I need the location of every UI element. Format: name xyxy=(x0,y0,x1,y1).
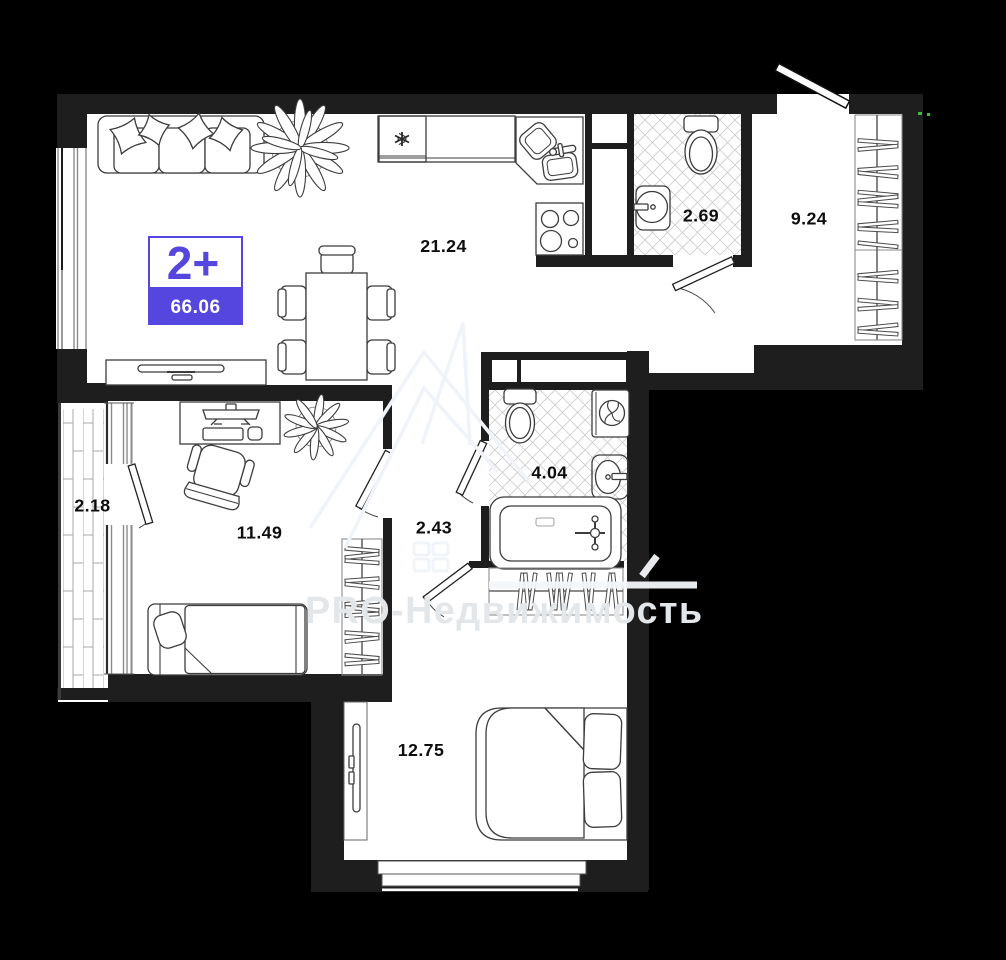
svg-text:21.24: 21.24 xyxy=(420,236,467,256)
svg-text:66.06: 66.06 xyxy=(170,297,220,318)
svg-text:12.75: 12.75 xyxy=(398,740,445,760)
svg-text:4.04: 4.04 xyxy=(531,463,567,483)
svg-text:2.43: 2.43 xyxy=(416,518,452,538)
svg-text:2.18: 2.18 xyxy=(74,496,110,516)
svg-text:PRO-Недвижимость: PRO-Недвижимость xyxy=(305,590,704,632)
svg-text:2+: 2+ xyxy=(167,237,219,289)
svg-text:2.69: 2.69 xyxy=(683,206,719,226)
svg-text:11.49: 11.49 xyxy=(237,523,283,543)
svg-text:9.24: 9.24 xyxy=(791,209,827,229)
